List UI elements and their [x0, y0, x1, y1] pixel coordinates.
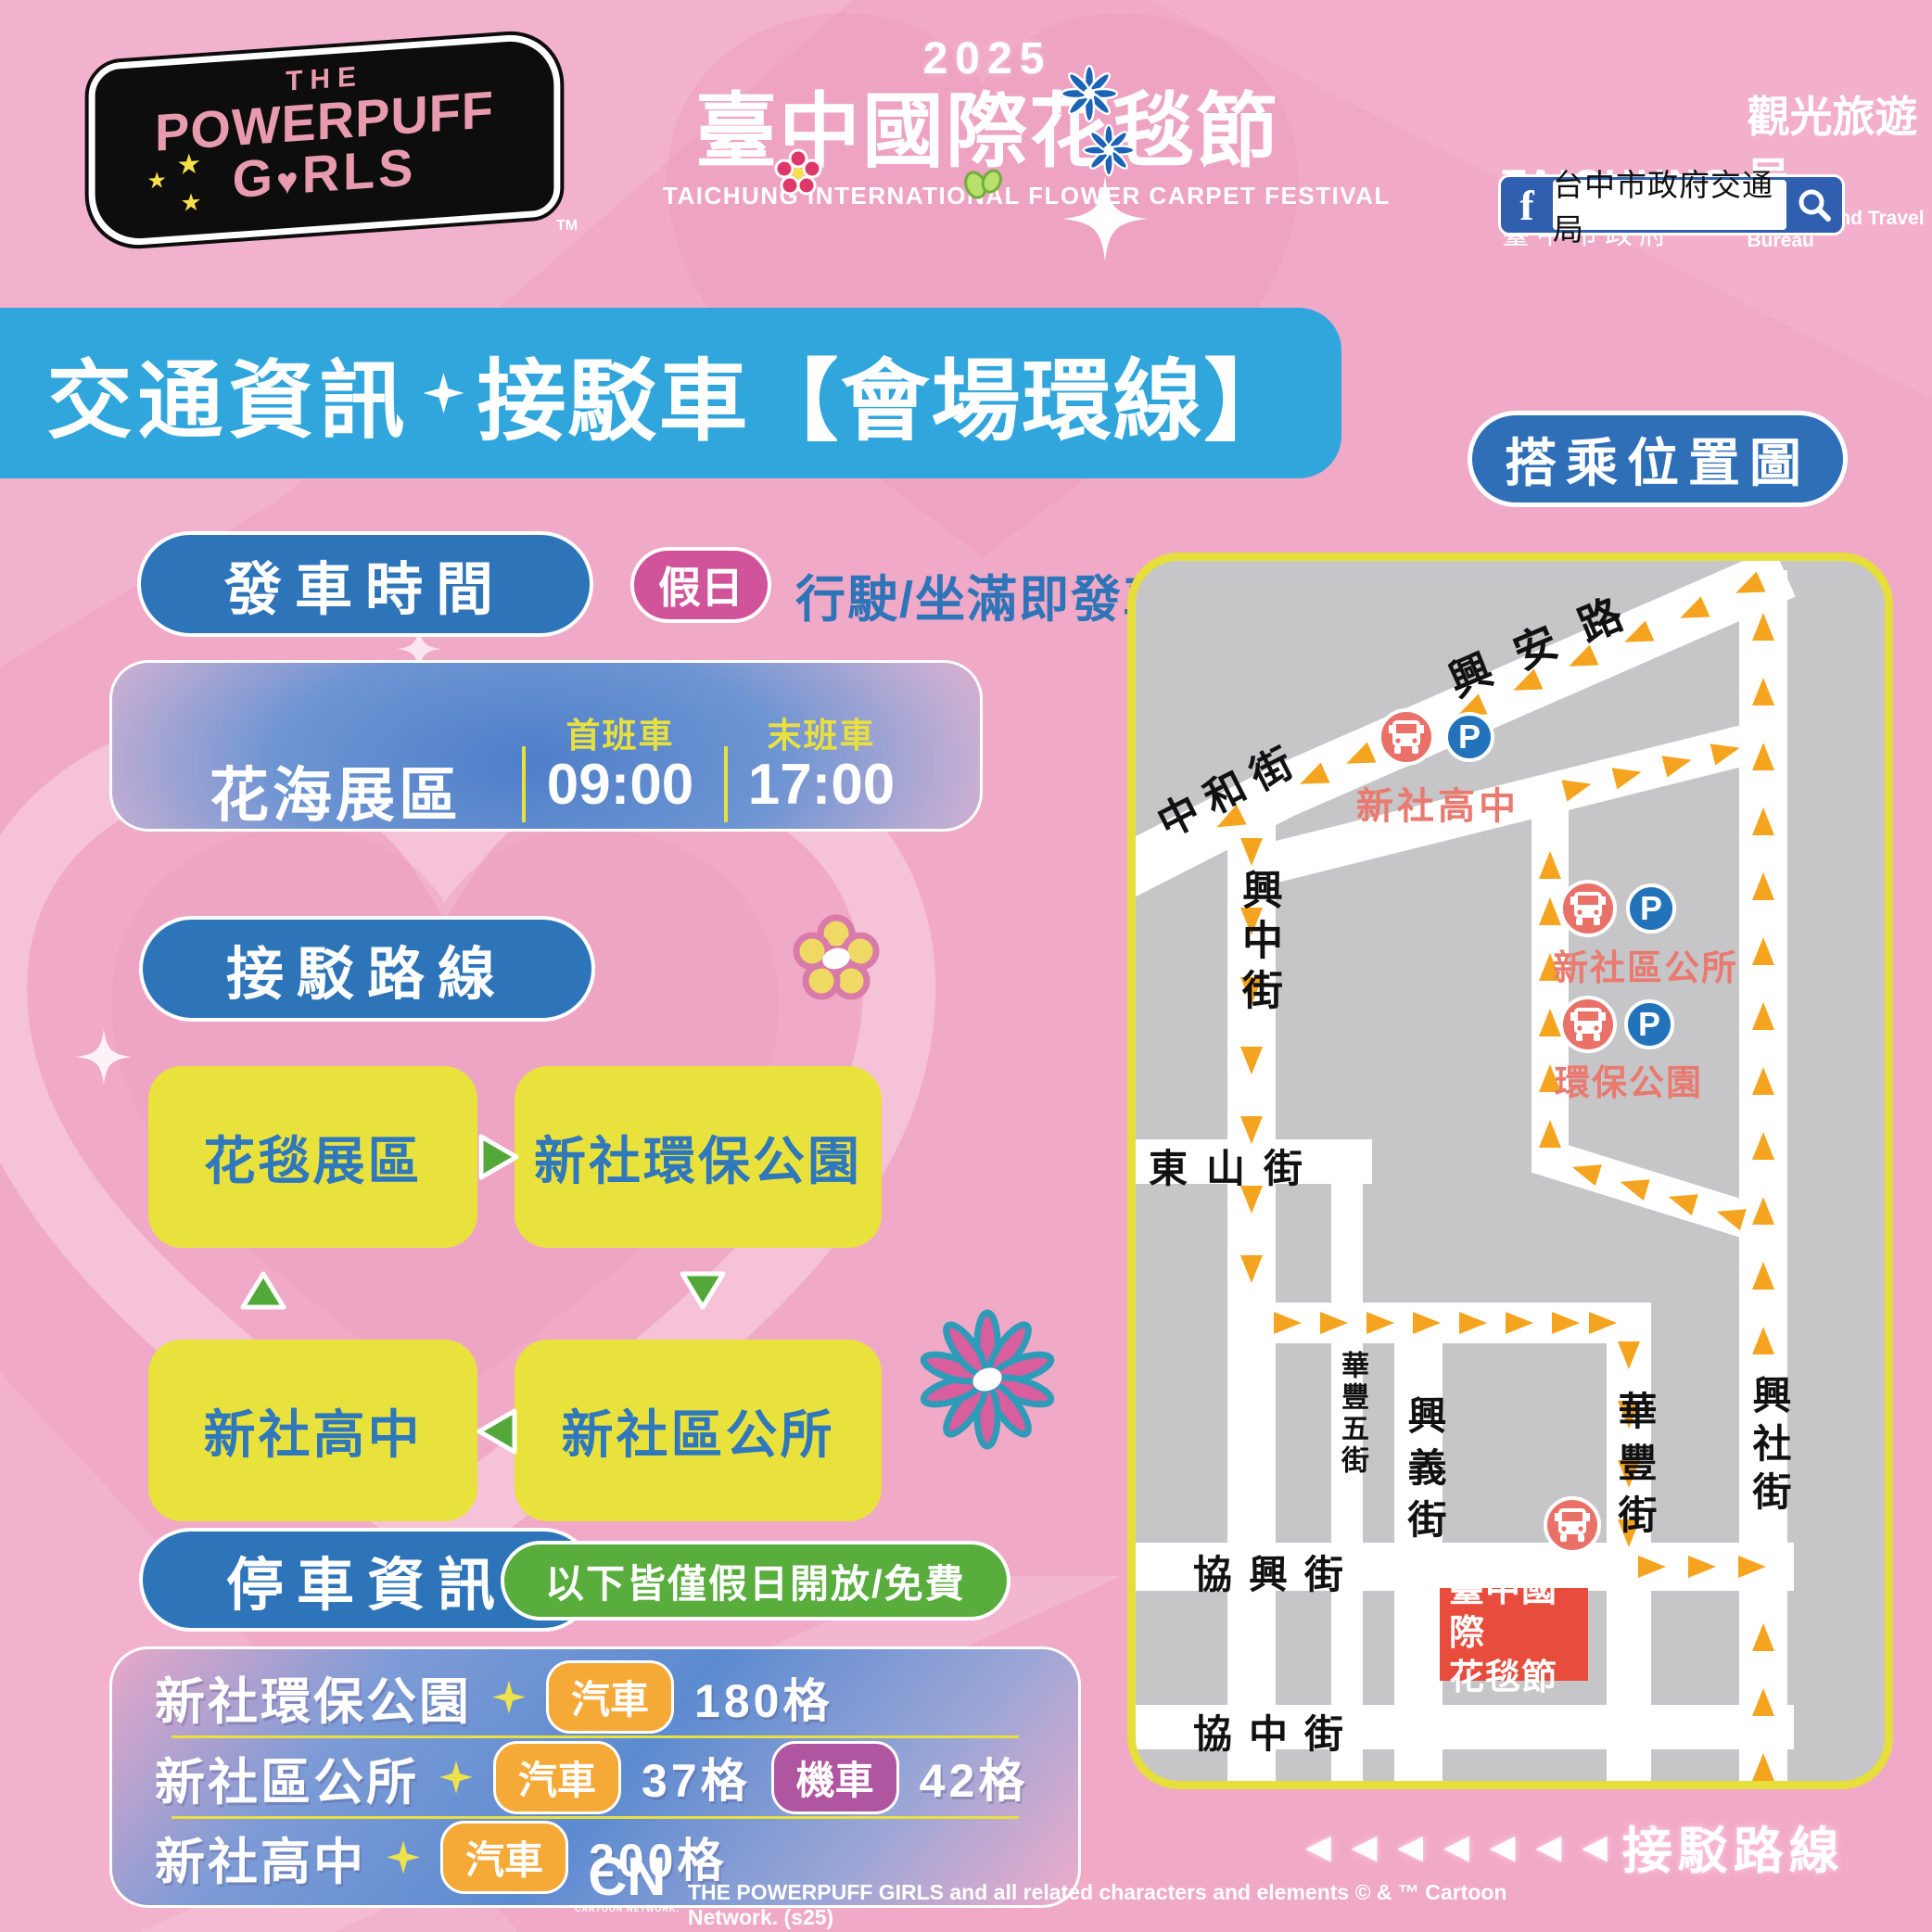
street-xingshe-st: 興社街	[1741, 1375, 1798, 1519]
last-bus-label: 末班車	[768, 707, 876, 757]
sparkle-icon	[424, 373, 464, 413]
legend-label: 接駁路線	[1622, 1810, 1845, 1883]
ppg-trademark: TM	[556, 218, 578, 235]
svg-text:P: P	[1638, 1005, 1660, 1043]
heart-icon: ♥	[276, 160, 302, 203]
parking-row: 新社區公所 汽車 37格 機車 42格	[155, 1738, 1036, 1815]
banner-shuttle: 接駁車【會場環線】	[477, 329, 1295, 458]
street-xiexing-st: 協興街	[1193, 1544, 1360, 1600]
banner-traffic-info: 交通資訊	[46, 332, 410, 455]
festival-year: 2025	[663, 33, 1312, 84]
bus-stop-icon	[1561, 998, 1615, 1051]
car-badge: 汽車	[493, 1741, 621, 1814]
route-arrow-down-icon	[679, 1268, 727, 1313]
first-bus-time: 09:00	[547, 752, 694, 818]
bus-stop-icon	[1379, 710, 1433, 764]
last-bus-time: 17:00	[748, 752, 896, 818]
route-arrow-up-icon	[239, 1268, 287, 1313]
parking-icon: P	[1626, 1001, 1672, 1048]
sparkle-icon	[439, 1760, 473, 1794]
street-huafeng-st: 華豐街	[1607, 1391, 1663, 1546]
first-bus-label: 首班車	[566, 707, 675, 757]
street-xingyi-st: 興義街	[1396, 1395, 1453, 1551]
departure-heading: 發車時間	[137, 531, 593, 637]
red-flower-icon	[772, 147, 824, 199]
blue-daisy-icon	[1082, 123, 1136, 177]
ppg-logo-rls: RLS	[302, 137, 417, 204]
cartoon-network-logo: CN CARTOON NETWORK.	[575, 1850, 680, 1913]
route-stop-high-school: 新社高中	[148, 1340, 477, 1521]
route-heading: 接駁路線	[139, 916, 595, 1022]
timetable-card: 花海展區 首班車 末班車 09:00 17:00	[109, 660, 983, 832]
shuttle-map: P P P 興安路 中和街 興中街 東山街 華豐五街 興義街 華豐街 協興街 協…	[1127, 553, 1893, 1789]
festival-title: 臺中國際花毯節	[663, 84, 1312, 178]
blue-daisy-icon	[1060, 64, 1119, 123]
venue-line2: 花毯節	[1449, 1657, 1557, 1701]
map-stop-district-office: 新社區公所	[1553, 939, 1738, 990]
star-icon: ★	[146, 170, 170, 194]
search-icon[interactable]	[1786, 187, 1842, 222]
parking-icon: P	[1628, 885, 1674, 932]
green-leaf-icon	[958, 157, 1006, 205]
motorcycle-badge: 機車	[771, 1741, 899, 1814]
facebook-search-bar[interactable]: f 台中市政府交通局	[1498, 174, 1845, 235]
route-arrow-right-icon	[476, 1133, 520, 1181]
divider	[724, 746, 728, 822]
street-xiezhong-st: 協中街	[1193, 1703, 1360, 1760]
parking-lot-name: 新社環保公園	[155, 1660, 472, 1734]
facebook-icon[interactable]: f	[1501, 181, 1553, 230]
street-xingzhong-st: 興中街	[1228, 869, 1288, 1019]
poster: THE POWERPUFF ★ ★ ★ G♥RLS TM 2025 臺中國際花毯…	[0, 0, 1932, 1932]
route-stop-eco-park: 新社環保公園	[515, 1066, 882, 1248]
street-huafeng-5th-st: 華豐五街	[1331, 1351, 1372, 1477]
sparkle-icon	[492, 1681, 526, 1714]
star-icon: ★	[176, 150, 205, 180]
holiday-badge: 假日	[630, 547, 771, 623]
yellow-flower-icon	[790, 910, 883, 1007]
legend-arrows-icon: ◀ ◀ ◀ ◀ ◀ ◀ ◀	[1305, 1827, 1613, 1866]
sparkle-icon	[387, 1840, 420, 1874]
cn-letters: CN	[575, 1850, 680, 1904]
car-badge: 汽車	[440, 1821, 568, 1894]
powerpuff-girls-logo: THE POWERPUFF ★ ★ ★ G♥RLS	[89, 32, 561, 248]
divider	[522, 746, 526, 822]
bus-stop-icon	[1545, 1498, 1599, 1552]
parking-row: 新社環保公園 汽車 180格	[155, 1659, 1036, 1735]
map-position-badge: 搭乘位置圖	[1468, 411, 1848, 507]
svg-text:P: P	[1640, 889, 1662, 927]
title-banner: 交通資訊 接駁車【會場環線】	[0, 308, 1341, 478]
parking-count: 42格	[920, 1744, 1029, 1811]
departure-note: 行駛/坐滿即發車	[795, 558, 1175, 631]
parking-lot-name: 新社高中	[155, 1821, 366, 1894]
star-icon: ★	[180, 189, 205, 215]
timetable-station: 花海展區	[210, 748, 462, 833]
bus-stop-icon	[1561, 882, 1615, 935]
parking-count: 180格	[694, 1664, 833, 1731]
svg-text:P: P	[1458, 718, 1481, 756]
parking-count: 37格	[642, 1744, 751, 1811]
route-stop-flower-carpet: 花毯展區	[148, 1066, 477, 1248]
route-stop-district-office: 新社區公所	[515, 1340, 882, 1521]
parking-lot-name: 新社區公所	[155, 1741, 419, 1814]
festival-logo: 2025 臺中國際花毯節 TAICHUNG INTERNATIONAL FLOW…	[663, 33, 1312, 210]
copyright-text: THE POWERPUFF GIRLS and all related char…	[688, 1880, 1522, 1930]
car-badge: 汽車	[546, 1660, 674, 1734]
parking-note-badge: 以下皆僅假日開放/免費	[501, 1541, 1010, 1621]
route-legend: ◀ ◀ ◀ ◀ ◀ ◀ ◀ 接駁路線	[1305, 1810, 1845, 1883]
venue-line1: 臺中國際	[1449, 1569, 1588, 1657]
street-dongshan-st: 東山街	[1149, 1138, 1321, 1194]
pink-daisy-icon	[913, 1305, 1061, 1454]
route-arrow-left-icon	[476, 1407, 520, 1455]
map-stop-high-school: 新社高中	[1356, 776, 1519, 830]
cn-sub: CARTOON NETWORK.	[575, 1904, 680, 1913]
venue-marker: 臺中國際 花毯節	[1440, 1588, 1588, 1681]
ppg-logo-g: G	[233, 147, 276, 209]
map-stop-eco-park: 環保公園	[1555, 1054, 1703, 1105]
parking-icon: P	[1446, 714, 1493, 760]
facebook-page-name[interactable]: 台中市政府交通局	[1553, 180, 1786, 230]
